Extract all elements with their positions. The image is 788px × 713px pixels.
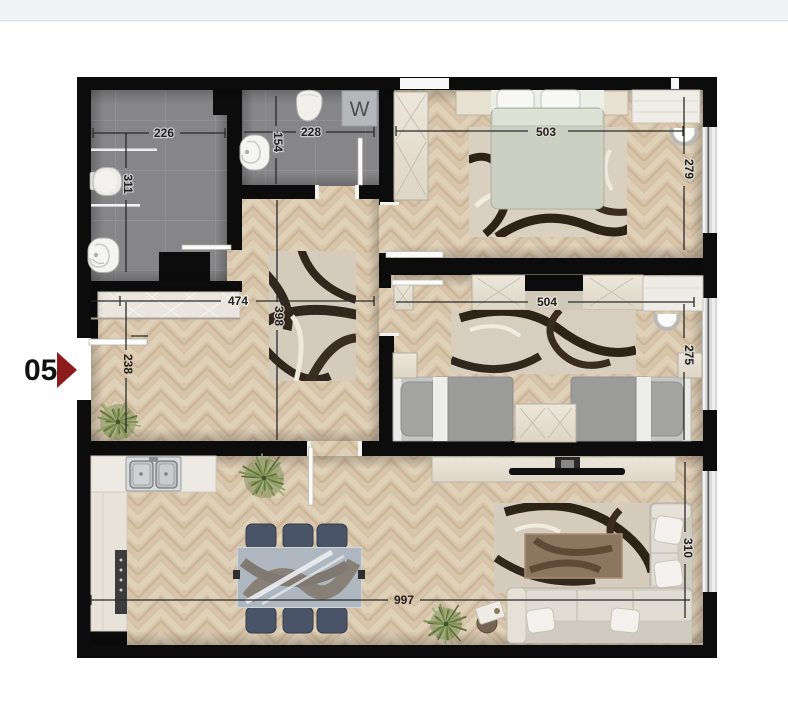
svg-text:503: 503	[536, 125, 556, 139]
svg-text:154: 154	[271, 132, 285, 152]
svg-text:W: W	[350, 98, 370, 121]
svg-text:474: 474	[228, 294, 248, 308]
svg-text:311: 311	[121, 174, 135, 194]
svg-text:238: 238	[121, 354, 135, 374]
svg-text:310: 310	[681, 538, 695, 558]
svg-text:228: 228	[301, 125, 321, 139]
svg-text:504: 504	[537, 295, 557, 309]
svg-text:275: 275	[682, 345, 696, 365]
svg-text:05: 05	[24, 354, 57, 387]
svg-text:226: 226	[154, 126, 174, 140]
svg-text:398: 398	[272, 306, 286, 326]
svg-text:279: 279	[682, 159, 696, 179]
svg-text:997: 997	[394, 593, 414, 607]
